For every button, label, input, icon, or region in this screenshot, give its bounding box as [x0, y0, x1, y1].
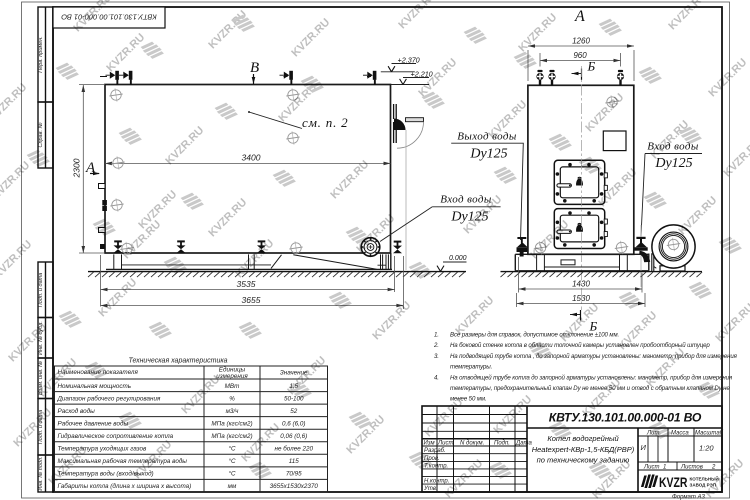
svg-text:Габариты котла (длина х ширина: Габариты котла (длина х ширина х высота) — [58, 482, 192, 490]
svg-text:На отводящей трубе котла до за: На отводящей трубе котла до запорной арм… — [450, 374, 733, 381]
svg-text:Б: Б — [587, 59, 596, 74]
svg-text:Диапазон рабочего регулировани: Диапазон рабочего регулирования — [57, 394, 161, 402]
svg-text:Подп. и дата: Подп. и дата — [38, 273, 44, 307]
svg-text:Листов: Листов — [680, 465, 703, 471]
svg-text:измерения: измерения — [216, 373, 248, 380]
svg-text:2300: 2300 — [72, 158, 82, 178]
svg-text:1: 1 — [663, 465, 666, 471]
svg-text:Расход воды: Расход воды — [58, 407, 96, 415]
svg-text:температуры.: температуры. — [450, 364, 492, 371]
svg-text:Лист: Лист — [643, 465, 659, 471]
svg-text:Изм: Изм — [424, 441, 435, 447]
svg-text:°С: °С — [228, 457, 236, 465]
svg-text:А: А — [574, 8, 585, 25]
svg-text:4.: 4. — [434, 374, 439, 381]
svg-text:Dy125: Dy125 — [469, 147, 507, 162]
svg-text:3400: 3400 — [242, 153, 261, 163]
svg-text:3655: 3655 — [242, 295, 261, 305]
svg-text:°С: °С — [228, 470, 236, 478]
svg-text:115: 115 — [289, 458, 300, 465]
svg-text:по техническому заданию: по техническому заданию — [537, 456, 630, 465]
svg-text:Рабочее давление воды: Рабочее давление воды — [58, 419, 129, 427]
svg-text:Масса: Масса — [671, 430, 689, 436]
svg-text:Котел водогрейный: Котел водогрейный — [547, 434, 619, 443]
svg-text:1:20: 1:20 — [699, 444, 714, 453]
svg-text:КВТУ.130.101.00.000-01 ВО: КВТУ.130.101.00.000-01 ВО — [61, 13, 157, 22]
svg-text:0,06 (0,6): 0,06 (0,6) — [280, 433, 307, 440]
svg-text:температуры, предохранительный: температуры, предохранительный клапан Dу… — [450, 385, 730, 392]
svg-text:0,6 (6,0): 0,6 (6,0) — [282, 420, 305, 427]
svg-text:Гидравлическое сопротивление к: Гидравлическое сопротивление котла — [58, 432, 174, 440]
svg-text:Номинальная мощность: Номинальная мощность — [58, 383, 132, 390]
svg-text:2.: 2. — [433, 342, 439, 349]
svg-text:мм: мм — [228, 483, 237, 490]
svg-text:не более 220: не более 220 — [275, 445, 314, 453]
svg-text:МПа (кгс/см2): МПа (кгс/см2) — [211, 420, 252, 427]
svg-text:1.: 1. — [434, 332, 439, 339]
svg-text:1530: 1530 — [572, 294, 590, 303]
svg-text:Все размеры для справок, допус: Все размеры для справок, допустимое откл… — [450, 332, 619, 339]
svg-text:960: 960 — [573, 51, 587, 60]
svg-text:1260: 1260 — [572, 37, 590, 46]
svg-text:Масштаб: Масштаб — [695, 430, 724, 436]
svg-text:КВТУ.130.101.00.000-01 ВО: КВТУ.130.101.00.000-01 ВО — [549, 411, 702, 425]
svg-text:°С: °С — [228, 445, 236, 453]
svg-text:0.000: 0.000 — [449, 255, 467, 262]
svg-text:Инв. № подл.: Инв. № подл. — [38, 456, 44, 490]
svg-text:3.: 3. — [434, 353, 439, 360]
svg-text:%: % — [229, 395, 235, 402]
svg-text:В: В — [250, 60, 259, 76]
svg-text:На боковой стенке котла в обла: На боковой стенке котла в области топочн… — [450, 342, 710, 349]
svg-text:Дата: Дата — [515, 441, 532, 447]
svg-text:70/95: 70/95 — [286, 471, 302, 478]
svg-text:На подводящей трубе котла ,: На подводящей трубе котла , до запорной … — [450, 353, 738, 360]
svg-text:Heatexpert-КВр-1,5-КБД(РВР): Heatexpert-КВр-1,5-КБД(РВР) — [532, 445, 635, 454]
svg-text:Dy125: Dy125 — [654, 156, 692, 171]
svg-text:Подп.: Подп. — [494, 441, 510, 447]
svg-text:N докум.: N докум. — [460, 441, 484, 447]
svg-text:Разраб.: Разраб. — [424, 448, 446, 454]
svg-text:KVZR: KVZR — [659, 474, 688, 490]
svg-text:Утв.: Утв. — [423, 486, 438, 492]
svg-text:И: И — [641, 443, 647, 452]
svg-text:Формат А3: Формат А3 — [672, 495, 705, 500]
svg-text:3535: 3535 — [237, 279, 256, 289]
svg-text:Вход воды: Вход воды — [440, 194, 492, 206]
svg-text:52: 52 — [290, 408, 298, 415]
svg-text:МПа (кгс/см2): МПа (кгс/см2) — [211, 433, 252, 440]
svg-text:Перв. примен.: Перв. примен. — [38, 36, 44, 73]
svg-text:см. п. 2: см. п. 2 — [302, 115, 348, 130]
svg-text:Температура уходящих газов: Температура уходящих газов — [58, 445, 147, 453]
svg-text:Справ. №: Справ. № — [38, 122, 44, 147]
svg-text:1430: 1430 — [572, 280, 590, 289]
svg-text:Н.контр.: Н.контр. — [424, 478, 449, 484]
svg-text:3655х1530х2370: 3655х1530х2370 — [270, 483, 319, 490]
svg-text:Лист: Лист — [437, 441, 453, 447]
svg-text:МВт: МВт — [225, 383, 240, 390]
svg-text:Техническая характеристика: Техническая характеристика — [128, 358, 227, 365]
svg-text:м3/ч: м3/ч — [226, 408, 240, 415]
svg-text:2: 2 — [711, 465, 716, 471]
